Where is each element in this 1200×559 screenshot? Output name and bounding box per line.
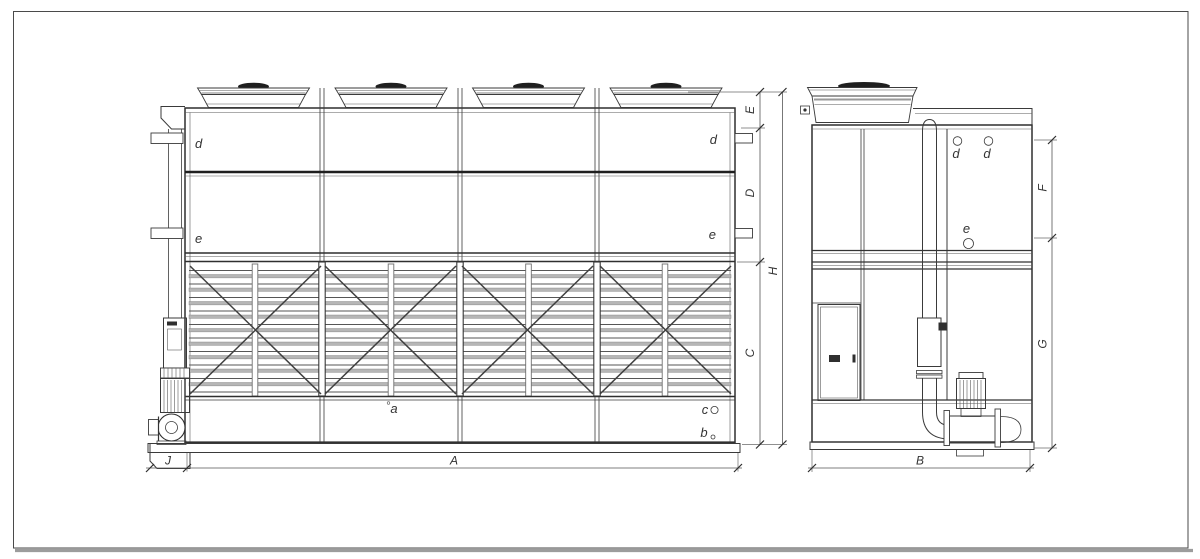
dim-label-F: F bbox=[1036, 184, 1050, 192]
door-label-mark bbox=[829, 355, 840, 362]
dim-label-J: J bbox=[164, 454, 172, 468]
side-label-d2: d bbox=[983, 146, 991, 161]
drawing-sheet: a c b bbox=[0, 0, 1200, 559]
inlet-stub-right-d bbox=[735, 134, 753, 144]
dim-label-A: A bbox=[449, 454, 458, 468]
dim-label-C: C bbox=[743, 348, 757, 357]
dim-label-H: H bbox=[766, 266, 780, 275]
panel-label-e-right: e bbox=[709, 227, 716, 242]
dim-label-G: G bbox=[1036, 339, 1050, 348]
panel-label-d-left: d bbox=[195, 136, 203, 151]
outlet-stub-right-e bbox=[735, 229, 753, 239]
side-label-d1: d bbox=[952, 146, 960, 161]
basin-label-b: b bbox=[700, 425, 707, 440]
basin-label-c: c bbox=[702, 402, 709, 417]
panel-label-e-left: e bbox=[195, 231, 202, 246]
technical-drawing: a c b bbox=[0, 0, 1200, 559]
stub-left-e bbox=[151, 228, 183, 239]
pump-volute-front bbox=[158, 414, 185, 441]
panel-label-d-right: d bbox=[710, 132, 718, 147]
basin-label-a: a bbox=[390, 401, 397, 416]
stub-left-d bbox=[151, 133, 183, 144]
dim-label-D: D bbox=[743, 188, 757, 197]
fan-cowl-side bbox=[801, 82, 918, 123]
side-label-e: e bbox=[963, 221, 970, 236]
dim-label-B: B bbox=[916, 454, 924, 468]
dim-label-E: E bbox=[743, 105, 757, 114]
